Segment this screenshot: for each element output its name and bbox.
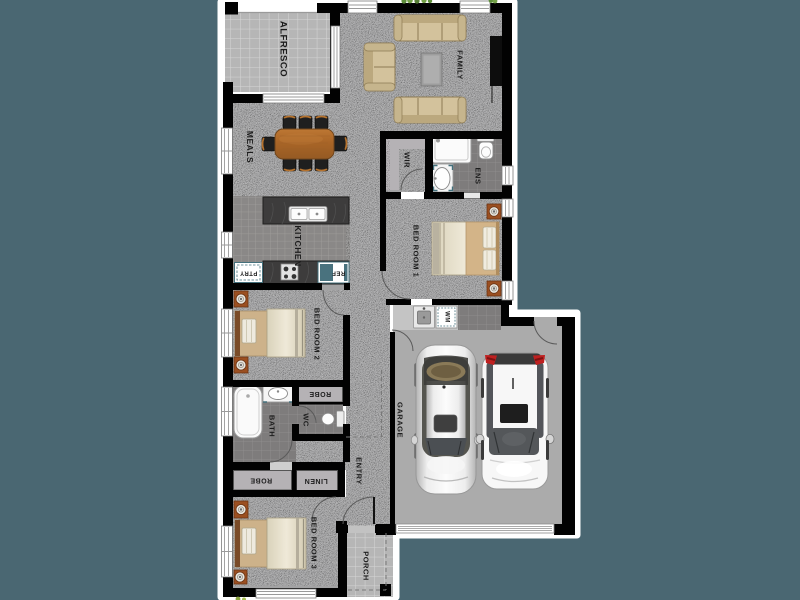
svg-text:BATH: BATH <box>268 415 277 437</box>
svg-text:ROBE: ROBE <box>309 390 331 397</box>
svg-text:BED ROOM 2: BED ROOM 2 <box>313 308 322 361</box>
svg-text:FAMILY: FAMILY <box>456 50 465 80</box>
svg-text:ROBE: ROBE <box>250 477 272 484</box>
svg-text:ALFRESCO: ALFRESCO <box>278 21 289 77</box>
svg-text:BED ROOM 3: BED ROOM 3 <box>310 517 319 570</box>
svg-text:MEALS: MEALS <box>245 131 255 163</box>
svg-text:ENTRY: ENTRY <box>355 457 364 485</box>
svg-text:REF: REF <box>332 270 346 276</box>
svg-text:WC: WC <box>302 413 311 427</box>
svg-text:BED ROOM 1: BED ROOM 1 <box>412 225 421 278</box>
svg-text:ENS: ENS <box>474 168 483 185</box>
svg-text:GARAGE: GARAGE <box>396 402 405 438</box>
svg-text:WIR: WIR <box>403 152 412 168</box>
svg-text:KITCHEN: KITCHEN <box>293 225 303 266</box>
svg-text:WM: WM <box>444 311 450 323</box>
svg-text:PORCH: PORCH <box>362 551 371 581</box>
svg-text:LINEN: LINEN <box>304 477 328 484</box>
svg-text:PTRY: PTRY <box>240 270 258 276</box>
